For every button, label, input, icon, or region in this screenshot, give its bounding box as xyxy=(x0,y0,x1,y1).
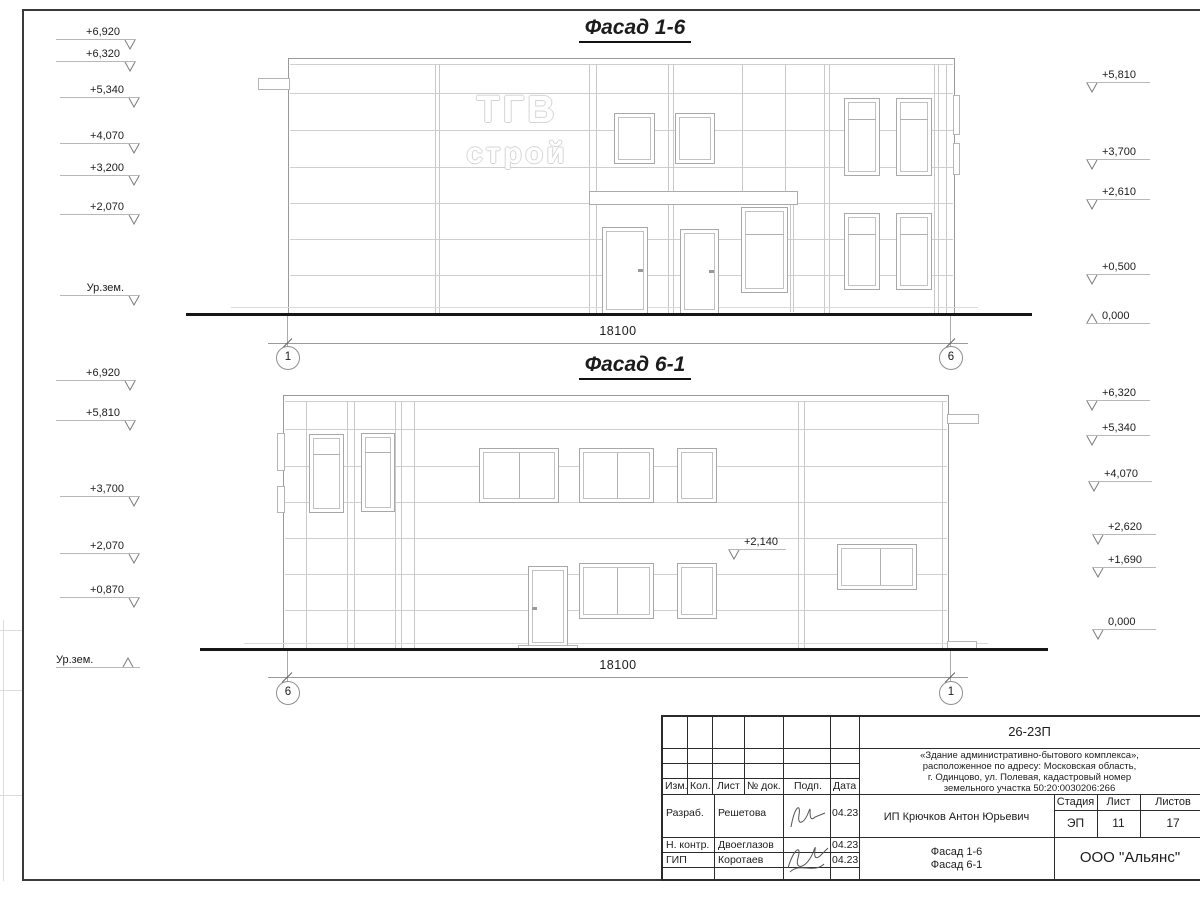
elevation-mark: 0,000 xyxy=(1092,616,1156,642)
plinth-line xyxy=(244,643,988,644)
axis-bubble: 1 xyxy=(276,346,300,370)
row-date: 04.23 xyxy=(832,807,858,819)
elevation-mark: +3,700 xyxy=(60,483,140,509)
elevation-mark: +5,810 xyxy=(56,407,136,433)
margin-stamp-line xyxy=(0,630,22,631)
facade-1-6-title: Фасад 1-6 xyxy=(579,16,692,43)
sheet-title-line: Фасад 1-6 xyxy=(859,846,1054,859)
window xyxy=(896,213,932,290)
description-line: «Здание административно-бытового комплек… xyxy=(861,750,1198,761)
elevation-mark: +0,500 xyxy=(1086,261,1150,287)
col-data: Дата xyxy=(833,780,856,792)
window xyxy=(741,207,788,293)
elevation-mark: +4,070 xyxy=(60,130,140,156)
window xyxy=(844,213,880,290)
description-line: г. Одинцово, ул. Полевая, кадастровый но… xyxy=(861,772,1198,783)
sheet-title-line: Фасад 6-1 xyxy=(859,859,1054,872)
window xyxy=(614,113,655,164)
ledge xyxy=(953,95,960,135)
window xyxy=(896,98,932,176)
elevation-mark: +2,070 xyxy=(60,540,140,566)
row-date: 04.23 xyxy=(832,854,858,866)
axis-bubble: 1 xyxy=(939,681,963,705)
client-name: ИП Крючков Антон Юрьевич xyxy=(859,811,1054,823)
row-name: Решетова xyxy=(718,807,766,819)
window xyxy=(579,448,654,503)
margin-stamp-line xyxy=(0,795,22,796)
elevation-mark: +2,610 xyxy=(1086,186,1150,212)
window xyxy=(677,563,717,619)
frame-top xyxy=(23,9,1200,11)
elevation-mark: +5,340 xyxy=(1086,422,1150,448)
stage-value: ЭП xyxy=(1054,816,1097,830)
row-role: Н. контр. xyxy=(666,839,709,851)
col-kol: Кол. xyxy=(690,780,711,792)
ledge xyxy=(258,78,290,90)
window xyxy=(837,544,917,590)
elevation-mark: +2,620 xyxy=(1092,521,1156,547)
elevation-mark: +5,340 xyxy=(60,84,140,110)
ledge xyxy=(947,414,979,424)
window xyxy=(579,563,654,619)
facade-6-1-title-wrap: Фасад 6-1 xyxy=(500,353,770,380)
door xyxy=(528,566,568,647)
door xyxy=(602,227,648,314)
row-name: Коротаев xyxy=(718,854,763,866)
col-podp: Подп. xyxy=(794,780,822,792)
elevation-mark: +4,070 xyxy=(1088,468,1152,494)
sheet-content-title: Фасад 1-6 Фасад 6-1 xyxy=(859,846,1054,872)
axis-bubble: 6 xyxy=(276,681,300,705)
description-line: расположенное по адресу: Московская обла… xyxy=(861,761,1198,772)
window xyxy=(677,448,717,503)
elevation-mark: Ур.зем. xyxy=(56,654,140,680)
margin-stamp-line xyxy=(0,690,22,691)
elevation-mark: +3,200 xyxy=(60,162,140,188)
elevation-mark: +2,070 xyxy=(60,201,140,227)
sheets-label: Листов xyxy=(1140,796,1200,808)
frame-left xyxy=(22,9,24,881)
drawing-sheet: Фасад 1-6 ТГВ строй xyxy=(0,0,1200,900)
col-doc: № док. xyxy=(747,780,781,792)
sheets-total: 17 xyxy=(1140,816,1200,830)
sheet-number: 11 xyxy=(1097,816,1140,830)
row-name: Двоеглазов xyxy=(718,839,774,851)
facade-logo-line2: строй xyxy=(457,137,577,171)
stage-label: Стадия xyxy=(1054,796,1097,808)
entrance-canopy xyxy=(589,191,798,205)
facade-logo-line1: ТГВ xyxy=(461,89,573,132)
window xyxy=(479,448,559,503)
elevation-mark: +3,700 xyxy=(1086,146,1150,172)
ledge xyxy=(953,143,960,175)
facade-6-1-title: Фасад 6-1 xyxy=(579,353,692,380)
facade-1-6-title-wrap: Фасад 1-6 xyxy=(500,16,770,43)
door xyxy=(680,229,719,314)
row-date: 04.23 xyxy=(832,839,858,851)
dimension-line xyxy=(268,677,968,678)
ledge xyxy=(277,433,285,471)
elevation-mark: 0,000 xyxy=(1086,310,1150,336)
elevation-mark: +0,870 xyxy=(60,584,140,610)
row-role: ГИП xyxy=(666,854,687,866)
col-list: Лист xyxy=(717,780,740,792)
ground-line xyxy=(200,648,1048,651)
facade-6-1-drawing xyxy=(283,395,949,650)
title-block: Изм. Кол. Лист № док. Подп. Дата Разраб.… xyxy=(661,715,1200,881)
axis-bubble: 6 xyxy=(939,346,963,370)
signature xyxy=(784,838,830,878)
ledge xyxy=(277,486,285,513)
elevation-mark: +1,690 xyxy=(1092,554,1156,580)
window xyxy=(675,113,715,164)
ground-line xyxy=(186,313,1032,316)
project-description: «Здание административно-бытового комплек… xyxy=(861,750,1198,794)
window xyxy=(309,434,344,513)
elevation-mark: +2,140 xyxy=(728,536,786,562)
elevation-mark: +6,320 xyxy=(56,48,136,74)
description-line: земельного участка 50:20:0030206:266 xyxy=(861,783,1198,794)
signature xyxy=(785,797,829,835)
col-izm: Изм. xyxy=(665,780,688,792)
window xyxy=(844,98,880,176)
company-name: ООО "Альянс" xyxy=(1054,849,1200,866)
elevation-mark: +6,920 xyxy=(56,367,136,393)
dimension-value: 18100 xyxy=(558,324,678,338)
margin-stamp-line xyxy=(3,620,4,881)
dimension-line xyxy=(268,343,968,344)
window xyxy=(361,433,395,512)
elevation-mark: Ур.зем. xyxy=(60,282,140,308)
dimension-value: 18100 xyxy=(558,658,678,672)
row-role: Разраб. xyxy=(666,807,704,819)
sheet-label: Лист xyxy=(1097,796,1140,808)
project-code: 26-23П xyxy=(859,724,1200,739)
elevation-mark: +6,320 xyxy=(1086,387,1150,413)
elevation-mark: +5,810 xyxy=(1086,69,1150,95)
facade-1-6-drawing: ТГВ строй xyxy=(288,58,955,315)
